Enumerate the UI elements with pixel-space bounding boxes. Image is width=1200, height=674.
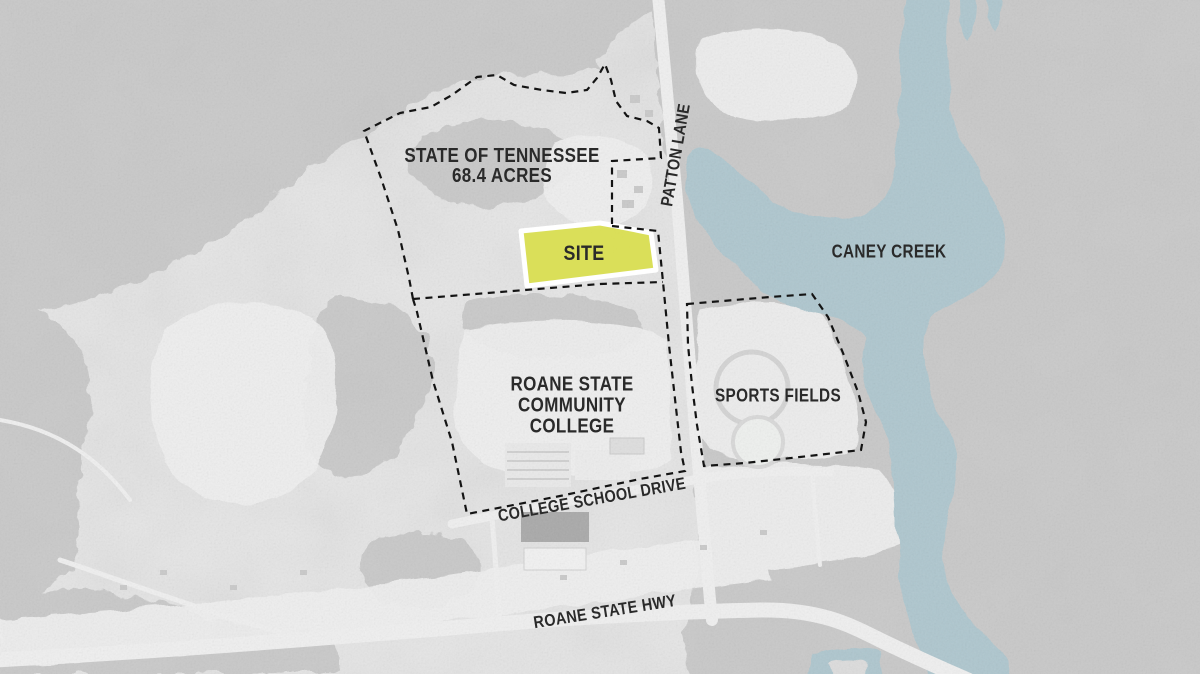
college-label-line1: ROANE STATE: [510, 375, 633, 396]
state-parcel-acreage: 68.4 ACRES: [404, 166, 599, 186]
aerial-grain-texture: [0, 0, 1200, 674]
state-parcel-label: STATE OF TENNESSEE 68.4 ACRES: [404, 146, 599, 186]
sports-fields-label: SPORTS FIELDS: [715, 387, 841, 406]
college-label: ROANE STATE COMMUNITY COLLEGE: [510, 375, 633, 438]
aerial-site-map: STATE OF TENNESSEE 68.4 ACRES PATTON LAN…: [0, 0, 1200, 674]
aerial-basemap: [0, 0, 1200, 674]
site-label: SITE: [563, 243, 604, 265]
caney-creek-label: CANEY CREEK: [832, 243, 947, 262]
college-label-line3: COLLEGE: [510, 417, 633, 438]
state-parcel-name: STATE OF TENNESSEE: [404, 146, 599, 166]
college-label-line2: COMMUNITY: [510, 396, 633, 417]
